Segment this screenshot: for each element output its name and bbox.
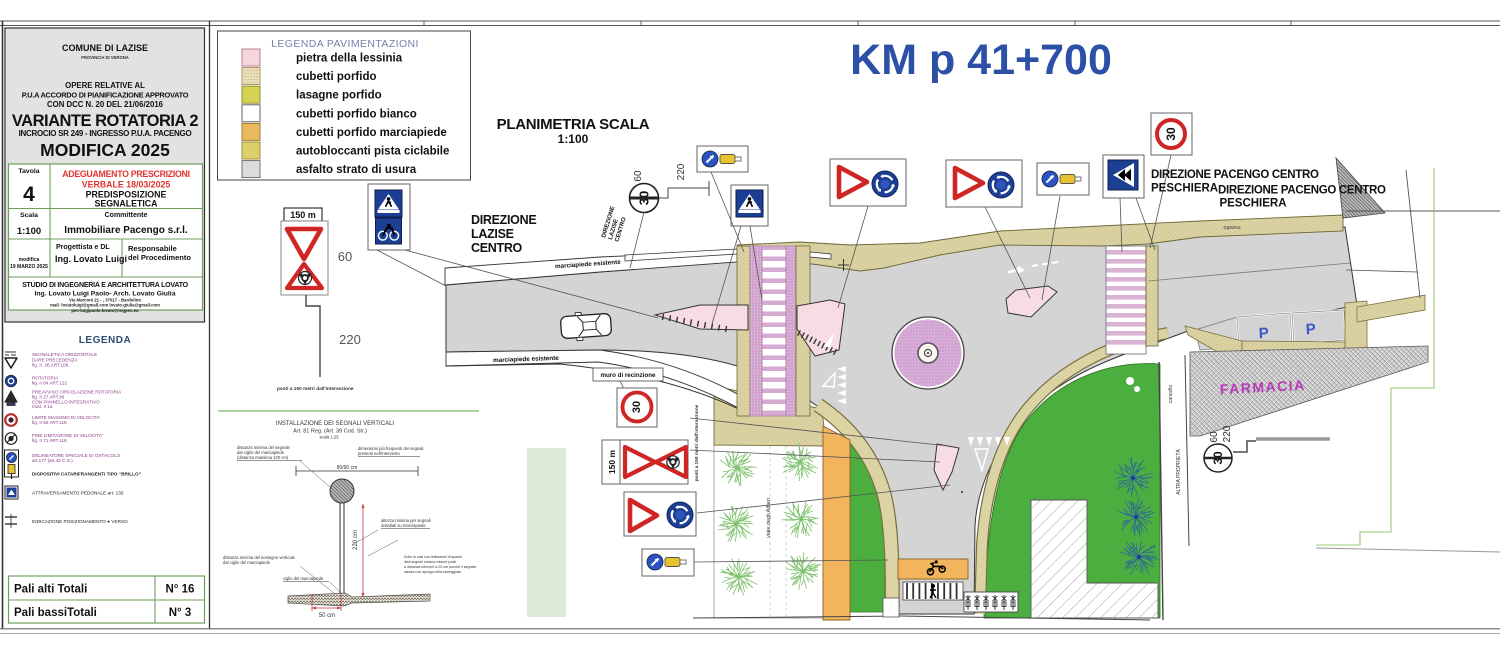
svg-text:DIREZIONE PACENGO CENTRO: DIREZIONE PACENGO CENTRO (1218, 185, 1386, 197)
svg-text:1:100: 1:100 (558, 132, 589, 146)
svg-text:60: 60 (1209, 431, 1220, 443)
svg-text:PLANIMETRIA SCALA: PLANIMETRIA SCALA (497, 116, 650, 133)
svg-text:Committente: Committente (105, 212, 148, 219)
svg-text:P: P (1258, 325, 1269, 343)
svg-text:Tavola: Tavola (18, 168, 39, 175)
svg-text:P.U.A ACCORDO DI PIANIFICAZION: P.U.A ACCORDO DI PIANIFICAZIONE APPROVAT… (22, 91, 189, 100)
svg-text:art.177 (art.42 C.S.): art.177 (art.42 C.S.) (32, 458, 73, 463)
svg-text:N° 16: N° 16 (166, 584, 195, 596)
svg-text:Ing. Lovato Luigi: Ing. Lovato Luigi (55, 254, 127, 264)
svg-text:fig. II .36 ART.106: fig. II .36 ART.106 (32, 362, 69, 367)
svg-text:fig. II 50 ART.116: fig. II 50 ART.116 (32, 420, 67, 425)
svg-text:INDICAZIONE POSIZIONAMENTO: INDICAZIONE POSIZIONAMENTO ● VERSO (32, 519, 128, 524)
svg-text:stesso non sporga nella carreg: stesso non sporga nella carreggiata (404, 570, 461, 574)
svg-text:220 cm: 220 cm (353, 530, 359, 550)
svg-text:220: 220 (676, 163, 687, 180)
svg-text:DIREZIONE: DIREZIONE (471, 213, 536, 227)
svg-text:220: 220 (1222, 425, 1233, 442)
svg-text:pietra della lessinia: pietra della lessinia (296, 53, 403, 65)
svg-text:dal ciglio del marciapiede: dal ciglio del marciapiede (223, 560, 271, 565)
svg-text:mail- lovatoluigi@gmail.com: mail- lovatoluigi@gmail.com lovato.giuli… (50, 303, 160, 308)
svg-text:LEGENDA PAVIMENTAZIONI: LEGENDA PAVIMENTAZIONI (271, 38, 419, 50)
svg-text:30: 30 (631, 401, 643, 413)
svg-text:VARIANTE ROTATORIA 2: VARIANTE ROTATORIA 2 (12, 112, 198, 130)
svg-text:OPERE RELATIVE AL: OPERE RELATIVE AL (65, 81, 145, 90)
svg-text:Pali bassiTotali: Pali bassiTotali (14, 607, 97, 619)
svg-text:cubetti porfido marciapiede: cubetti porfido marciapiede (296, 127, 447, 139)
svg-text:del Procedimento: del Procedimento (128, 253, 191, 262)
svg-text:presenti nell'intervento: presenti nell'intervento (358, 451, 400, 456)
svg-text:cubetti porfido bianco: cubetti porfido bianco (296, 108, 417, 120)
svg-text:PESCHIERA: PESCHIERA (1219, 198, 1286, 210)
svg-text:SEGNALETICA ORIZZONTALE: SEGNALETICA ORIZZONTALE (32, 352, 97, 357)
svg-text:INCROCIO SR 249 - INGRESSO P.U: INCROCIO SR 249 - INGRESSO P.U.A. PACENG… (19, 129, 192, 138)
svg-text:LAZISE: LAZISE (471, 227, 514, 241)
svg-text:ALTRA PROPRIETÀ: ALTRA PROPRIETÀ (1175, 448, 1182, 494)
svg-text:installati su marciapiede: installati su marciapiede (381, 523, 426, 528)
svg-text:80/90 cm: 80/90 cm (337, 465, 358, 471)
svg-text:cubetti porfido: cubetti porfido (296, 71, 377, 83)
svg-text:CENTRO: CENTRO (471, 241, 523, 255)
svg-text:(distanza massima 120 cm): (distanza massima 120 cm) (237, 455, 289, 460)
svg-text:PESCHIERA: PESCHIERA (1151, 183, 1218, 195)
svg-text:MODIFICA 2025: MODIFICA 2025 (40, 140, 170, 160)
svg-text:COMUNE DI LAZISE: COMUNE DI LAZISE (62, 43, 148, 53)
svg-text:LEGENDA: LEGENDA (79, 335, 131, 346)
svg-text:P: P (1305, 321, 1316, 339)
svg-text:STUDIO DI INGEGNERIA E ARCHITE: STUDIO DI INGEGNERIA E ARCHITETTURA LOVA… (22, 282, 189, 289)
svg-text:60: 60 (633, 170, 644, 182)
svg-text:Scala: Scala (20, 212, 38, 219)
svg-text:VERBALE 18/03/2025: VERBALE 18/03/2025 (82, 180, 171, 190)
svg-text:disti segnali minimo-misure po: disti segnali minimo-misure posti (404, 560, 456, 564)
svg-text:ATTRAVERSAMENTO PEDONALE a: ATTRAVERSAMENTO PEDONALE art. 135 (32, 491, 124, 496)
svg-text:posti a 150 metri dall'interse: posti a 150 metri dall'intersezione (277, 386, 354, 392)
svg-text:1:100: 1:100 (17, 226, 41, 237)
svg-text:muro di recinzione: muro di recinzione (600, 372, 656, 379)
svg-text:60: 60 (338, 249, 352, 264)
svg-text:ADEGUAMENTO PRESCRIZIONI: ADEGUAMENTO PRESCRIZIONI (62, 169, 190, 179)
svg-text:DISPOSITIVI CATARIFRANGENTI: DISPOSITIVI CATARIFRANGENTI TIPO “BRILLO… (32, 472, 141, 477)
svg-text:30: 30 (1164, 127, 1178, 141)
svg-text:pec-luigipaolo.lovato@ingpec.e: pec-luigipaolo.lovato@ingpec.eu (71, 308, 139, 313)
svg-text:50 cm: 50 cm (319, 613, 335, 619)
svg-text:fig. II 71 ART.118: fig. II 71 ART.118 (32, 438, 67, 443)
svg-text:a distanza inferiore a 20 cm p: a distanza inferiore a 20 cm purché il s… (404, 565, 476, 569)
svg-text:lasagne porfido: lasagne porfido (296, 90, 382, 102)
svg-text:asfalto strato di usura: asfalto strato di usura (296, 164, 417, 176)
svg-text:4: 4 (23, 183, 35, 206)
svg-text:KM p 41+700: KM p 41+700 (850, 36, 1112, 84)
svg-text:viale degli Alberi: viale degli Alberi (766, 498, 772, 538)
svg-text:posti a 150 metri dall'interse: posti a 150 metri dall'intersezione (694, 404, 700, 481)
svg-text:cancello: cancello (1168, 385, 1174, 404)
svg-text:INSTALLAZIONE DEI SEGNALI V: INSTALLAZIONE DEI SEGNALI VERTICALI (276, 421, 394, 427)
svg-text:220: 220 (339, 332, 361, 347)
svg-text:modifica: modifica (19, 257, 40, 263)
svg-text:muretto: muretto (1223, 224, 1240, 230)
svg-text:Ing. Lovato Luigi Paolo- Arch.: Ing. Lovato Luigi Paolo- Arch. Lovato Gi… (35, 291, 176, 298)
svg-text:mod. II 1a: mod. II 1a (32, 404, 53, 409)
svg-text:CON DCC N. 20 DEL 21/06/2016: CON DCC N. 20 DEL 21/06/2016 (47, 100, 164, 109)
svg-text:N° 3: N° 3 (169, 607, 192, 619)
svg-text:Progettista e DL: Progettista e DL (56, 244, 110, 251)
svg-text:DIREZIONE PACENGO CENTRO: DIREZIONE PACENGO CENTRO (1151, 169, 1319, 181)
svg-text:Sulle in casi con limitazioni: Sulle in casi con limitazioni di spazio (404, 555, 462, 559)
svg-text:150 m: 150 m (290, 210, 316, 220)
svg-text:19 MARZO 2025: 19 MARZO 2025 (10, 264, 48, 270)
svg-text:Pali alti Totali: Pali alti Totali (14, 584, 87, 596)
svg-text:Immobiliare Pacengo s.r.l.: Immobiliare Pacengo s.r.l. (64, 225, 188, 236)
svg-text:scala 1:25: scala 1:25 (319, 435, 339, 440)
svg-text:Responsabile: Responsabile (128, 244, 177, 253)
svg-text:PROVINCIA DI VERONA: PROVINCIA DI VERONA (81, 55, 129, 60)
svg-text:150 m: 150 m (607, 450, 617, 475)
svg-text:fig. II 84 ART.122: fig. II 84 ART.122 (32, 380, 67, 385)
svg-text:autobloccanti pista ciclabile: autobloccanti pista ciclabile (296, 146, 449, 158)
svg-text:SEGNALETICA: SEGNALETICA (94, 199, 158, 209)
